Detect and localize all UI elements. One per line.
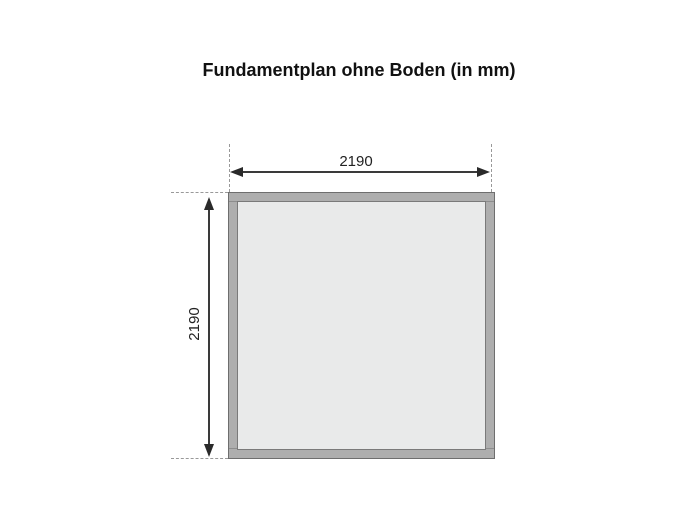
dimension-line-vertical	[208, 207, 210, 447]
extension-line-left-top	[171, 192, 228, 193]
foundation-interior	[237, 201, 486, 450]
height-dimension-label: 2190	[186, 302, 202, 346]
frame-seam-bottom-right	[485, 448, 494, 449]
arrowhead-down-icon	[204, 444, 214, 457]
drawing-canvas: Fundamentplan ohne Boden (in mm) 2190 21…	[0, 0, 700, 525]
page-title: Fundamentplan ohne Boden (in mm)	[9, 60, 700, 81]
foundation-frame	[228, 192, 495, 459]
width-dimension-label: 2190	[306, 153, 406, 170]
frame-seam-top-right	[485, 201, 494, 202]
arrowhead-up-icon	[204, 197, 214, 210]
dimension-line-horizontal	[241, 171, 481, 173]
arrowhead-right-icon	[477, 167, 490, 177]
arrowhead-left-icon	[230, 167, 243, 177]
extension-line-left-bottom	[171, 458, 228, 459]
extension-line-top-right	[491, 144, 492, 192]
